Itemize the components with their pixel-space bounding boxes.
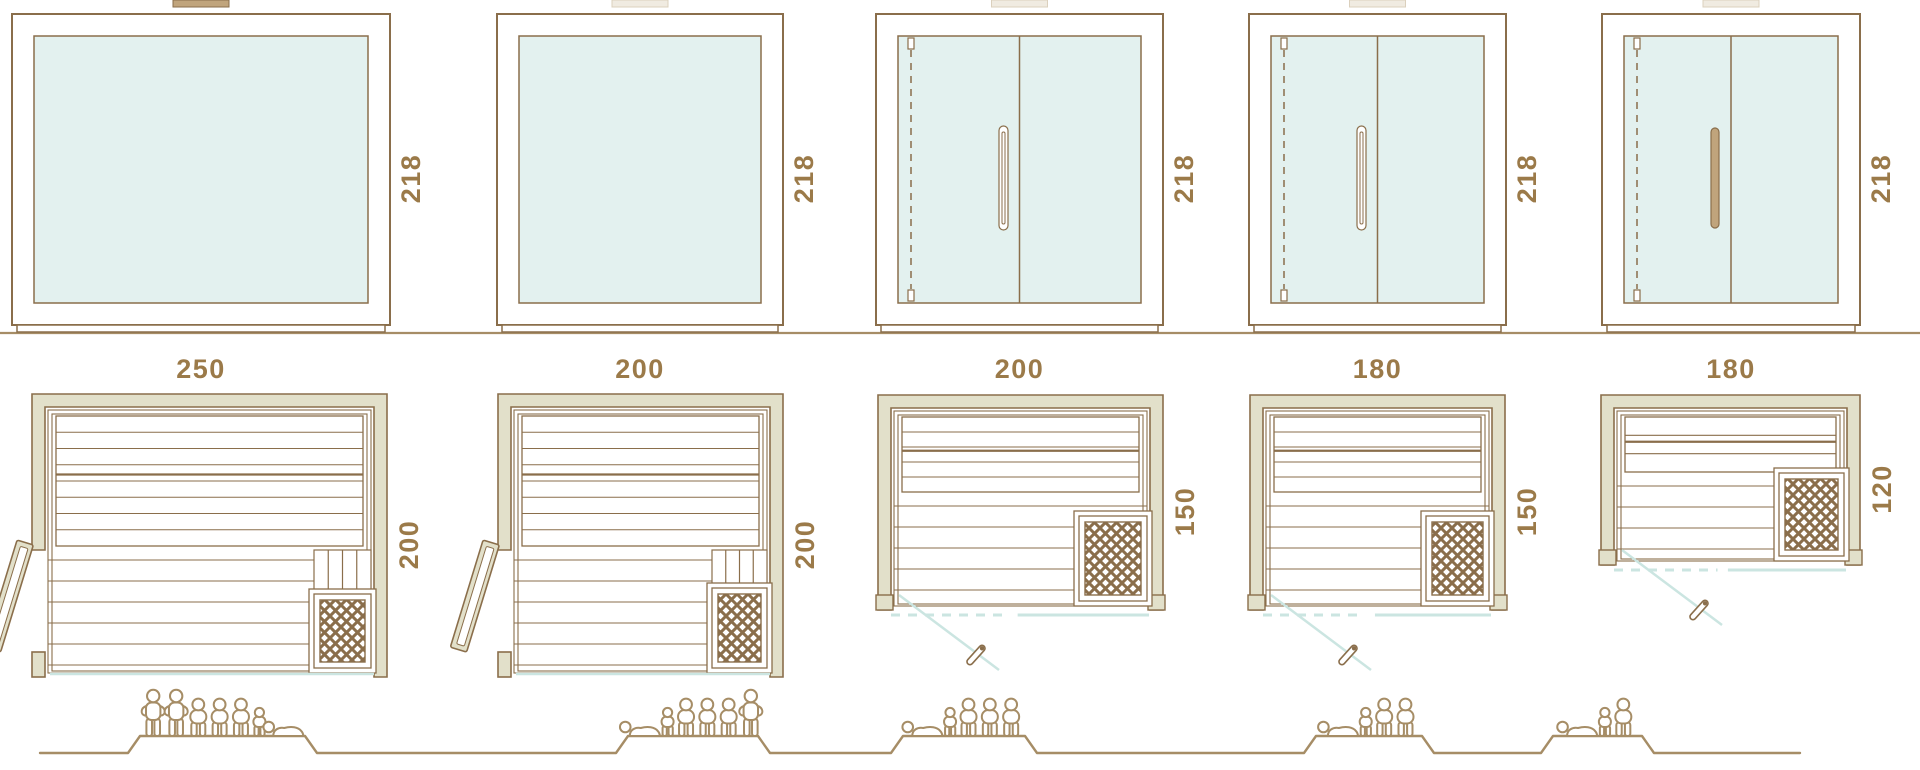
wall-stub	[498, 652, 511, 677]
person-lying-icon	[1557, 722, 1597, 736]
roof-cap	[992, 0, 1048, 7]
sauna-size-diagram: 2502182002002182002002181501802181501802…	[0, 0, 1920, 770]
height-label: 218	[396, 154, 426, 204]
head	[902, 722, 913, 733]
head	[745, 690, 757, 702]
width-label: 180	[1353, 354, 1403, 384]
torso	[1376, 710, 1392, 724]
door-handle-icon	[1357, 126, 1366, 230]
door-handle-icon	[1711, 128, 1719, 228]
person-child-icon	[944, 708, 956, 736]
door-leaf-open	[450, 540, 499, 652]
depth-label: 150	[1512, 487, 1542, 537]
torso	[678, 710, 694, 724]
wall-foot-left	[1599, 550, 1616, 565]
leg	[169, 719, 175, 736]
body	[1567, 727, 1597, 736]
hinge-top-icon	[1281, 38, 1287, 49]
leg	[962, 723, 967, 737]
torso	[190, 710, 206, 724]
base-sill	[502, 325, 778, 332]
head	[235, 699, 247, 711]
heater-grille	[1085, 522, 1141, 595]
leg	[752, 719, 758, 736]
person-seated-icon	[233, 699, 249, 736]
plan-sauna-200x200: 200	[450, 394, 820, 677]
leg	[1616, 723, 1621, 737]
leg	[1625, 723, 1630, 737]
heater-grille	[320, 600, 365, 662]
leg	[983, 723, 988, 737]
leg	[1398, 723, 1403, 737]
base-sill	[17, 325, 385, 332]
person-child-icon	[253, 708, 265, 736]
torso	[146, 703, 160, 721]
torso	[1397, 710, 1413, 724]
leg	[1377, 723, 1382, 737]
person-standing-icon	[142, 690, 165, 736]
person-seated-icon	[212, 699, 228, 736]
height-label: 218	[789, 154, 819, 204]
leg	[1004, 723, 1009, 737]
hinge-bottom-icon	[1634, 290, 1640, 301]
person-seated-icon	[1615, 699, 1631, 736]
depth-label: 120	[1867, 464, 1897, 514]
person-lying-icon	[902, 722, 942, 736]
torso	[1615, 710, 1631, 724]
head	[147, 690, 159, 702]
plan-sauna-200x150: 150	[876, 395, 1200, 670]
leg	[709, 723, 714, 737]
capacity-ground-line	[40, 736, 1800, 753]
leg	[970, 723, 975, 737]
depth-label: 200	[790, 520, 820, 570]
person-seated-icon	[678, 699, 694, 736]
torso	[721, 710, 737, 724]
torso	[744, 703, 758, 721]
person-lying-icon	[1318, 722, 1358, 736]
glass-panel	[519, 36, 761, 303]
height-label: 218	[1866, 154, 1896, 204]
head	[1600, 708, 1609, 717]
roof-cap	[173, 0, 229, 7]
person-child-icon	[1360, 708, 1372, 736]
wall-foot-left	[876, 595, 893, 610]
elevation-sauna-250x200: 250218	[12, 0, 426, 384]
base-sill	[881, 325, 1158, 332]
heater-grille	[718, 594, 761, 662]
width-label: 180	[1706, 354, 1756, 384]
elevation-sauna-180x150: 180218	[1249, 0, 1542, 384]
base-sill	[1607, 325, 1855, 332]
wall-foot-left	[1248, 595, 1265, 610]
height-label: 218	[1169, 154, 1199, 204]
person-seated-icon	[1376, 699, 1392, 736]
head	[680, 699, 692, 711]
elevation-sauna-200x200: 200218	[497, 0, 819, 384]
heater-grille	[1785, 479, 1838, 550]
body	[912, 727, 942, 736]
upper-bench	[902, 417, 1139, 492]
leg	[1407, 723, 1412, 737]
person-seated-icon	[190, 699, 206, 736]
width-label: 200	[615, 354, 665, 384]
hinge-bottom-icon	[1281, 290, 1287, 301]
head	[1318, 722, 1329, 733]
torso	[982, 710, 998, 724]
leg	[221, 723, 226, 737]
plan-sauna-180x120: 120	[1599, 395, 1897, 625]
door-leaf-open	[0, 540, 33, 652]
leg	[688, 723, 693, 737]
person-standing-icon	[165, 690, 188, 736]
leg	[991, 723, 996, 737]
plan-sauna-250x200: 200	[0, 394, 424, 677]
torso	[961, 710, 977, 724]
leg	[234, 723, 239, 737]
capacity-group-sauna-250x200	[142, 690, 304, 736]
depth-label: 200	[394, 520, 424, 570]
leg	[1386, 723, 1391, 737]
upper-bench	[1625, 417, 1836, 472]
person-lying-icon	[620, 722, 660, 736]
plan-sauna-180x150: 150	[1248, 395, 1542, 670]
head	[1378, 699, 1390, 711]
height-label: 218	[1512, 154, 1542, 204]
roof-cap	[1703, 0, 1759, 7]
person-seated-icon	[961, 699, 977, 736]
person-seated-icon	[1003, 699, 1019, 736]
head	[1005, 699, 1017, 711]
roof-cap	[612, 0, 668, 7]
hinge-top-icon	[1634, 38, 1640, 49]
elevation-sauna-180x120: 180218	[1602, 0, 1896, 384]
torso	[699, 710, 715, 724]
leg	[191, 723, 196, 737]
capacity-group-sauna-180x150	[1318, 699, 1413, 736]
capacity-group-sauna-180x120	[1557, 699, 1631, 736]
body	[273, 727, 303, 736]
capacity-group-sauna-200x150	[902, 699, 1019, 736]
person-standing-icon	[739, 690, 762, 736]
roof-cap	[1350, 0, 1406, 7]
torso	[212, 710, 228, 724]
person-child-icon	[1599, 708, 1611, 736]
heater-grille	[1432, 522, 1483, 595]
torso	[1003, 710, 1019, 724]
person-lying-icon	[263, 722, 303, 736]
head	[1557, 722, 1568, 733]
leg	[730, 723, 735, 737]
head	[663, 708, 672, 717]
upper-bench	[1274, 417, 1481, 492]
person-seated-icon	[1397, 699, 1413, 736]
head	[170, 690, 182, 702]
leg	[177, 719, 183, 736]
leg	[213, 723, 218, 737]
width-label: 250	[176, 354, 226, 384]
leg	[200, 723, 205, 737]
head	[1400, 699, 1412, 711]
depth-label: 150	[1170, 487, 1200, 537]
hinge-bottom-icon	[908, 290, 914, 301]
head	[701, 699, 713, 711]
hinge-top-icon	[908, 38, 914, 49]
person-child-icon	[662, 708, 674, 736]
leg	[700, 723, 705, 737]
capacity-group-sauna-200x200	[620, 690, 762, 736]
head	[1617, 699, 1629, 711]
head	[214, 699, 226, 711]
person-seated-icon	[699, 699, 715, 736]
leg	[154, 719, 160, 736]
body	[1328, 727, 1358, 736]
head	[192, 699, 204, 711]
door-leaf-inner	[457, 546, 494, 646]
person-seated-icon	[721, 699, 737, 736]
head	[620, 722, 631, 733]
head	[945, 708, 954, 717]
leg	[679, 723, 684, 737]
base-sill	[1254, 325, 1501, 332]
head	[963, 699, 975, 711]
leg	[722, 723, 727, 737]
head	[263, 722, 274, 733]
head	[255, 708, 264, 717]
leg	[1013, 723, 1018, 737]
width-label: 200	[995, 354, 1045, 384]
torso	[169, 703, 183, 721]
head	[723, 699, 735, 711]
door-handle-icon	[999, 126, 1008, 230]
leg	[243, 723, 248, 737]
head	[1361, 708, 1370, 717]
leg	[146, 719, 152, 736]
elevation-sauna-200x150: 200218	[876, 0, 1199, 384]
torso	[233, 710, 249, 724]
glass-panel	[34, 36, 368, 303]
body	[630, 727, 660, 736]
wall-stub	[32, 652, 45, 677]
leg	[744, 719, 750, 736]
diagram-scene: 2502182002002182002002181501802181501802…	[0, 0, 1920, 770]
person-seated-icon	[982, 699, 998, 736]
head	[984, 699, 996, 711]
